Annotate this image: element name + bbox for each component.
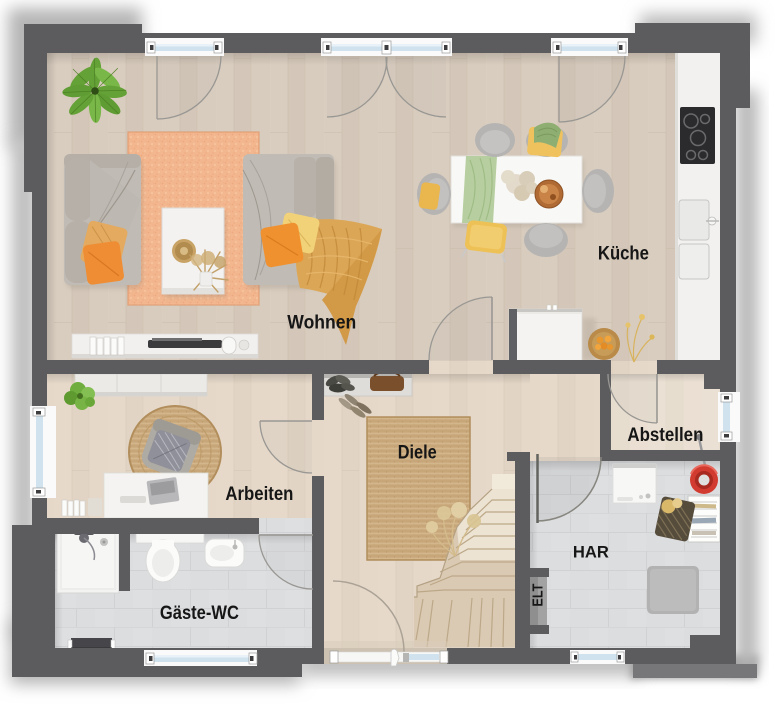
svg-text:HAR: HAR xyxy=(573,542,609,561)
svg-text:Abstellen: Abstellen xyxy=(627,424,703,446)
svg-text:ELT: ELT xyxy=(530,584,547,607)
svg-text:Arbeiten: Arbeiten xyxy=(225,484,293,505)
svg-text:Diele: Diele xyxy=(398,442,437,464)
svg-text:Wohnen: Wohnen xyxy=(287,313,356,334)
svg-text:Küche: Küche xyxy=(598,243,649,264)
svg-text:Gäste-WC: Gäste-WC xyxy=(160,602,239,624)
